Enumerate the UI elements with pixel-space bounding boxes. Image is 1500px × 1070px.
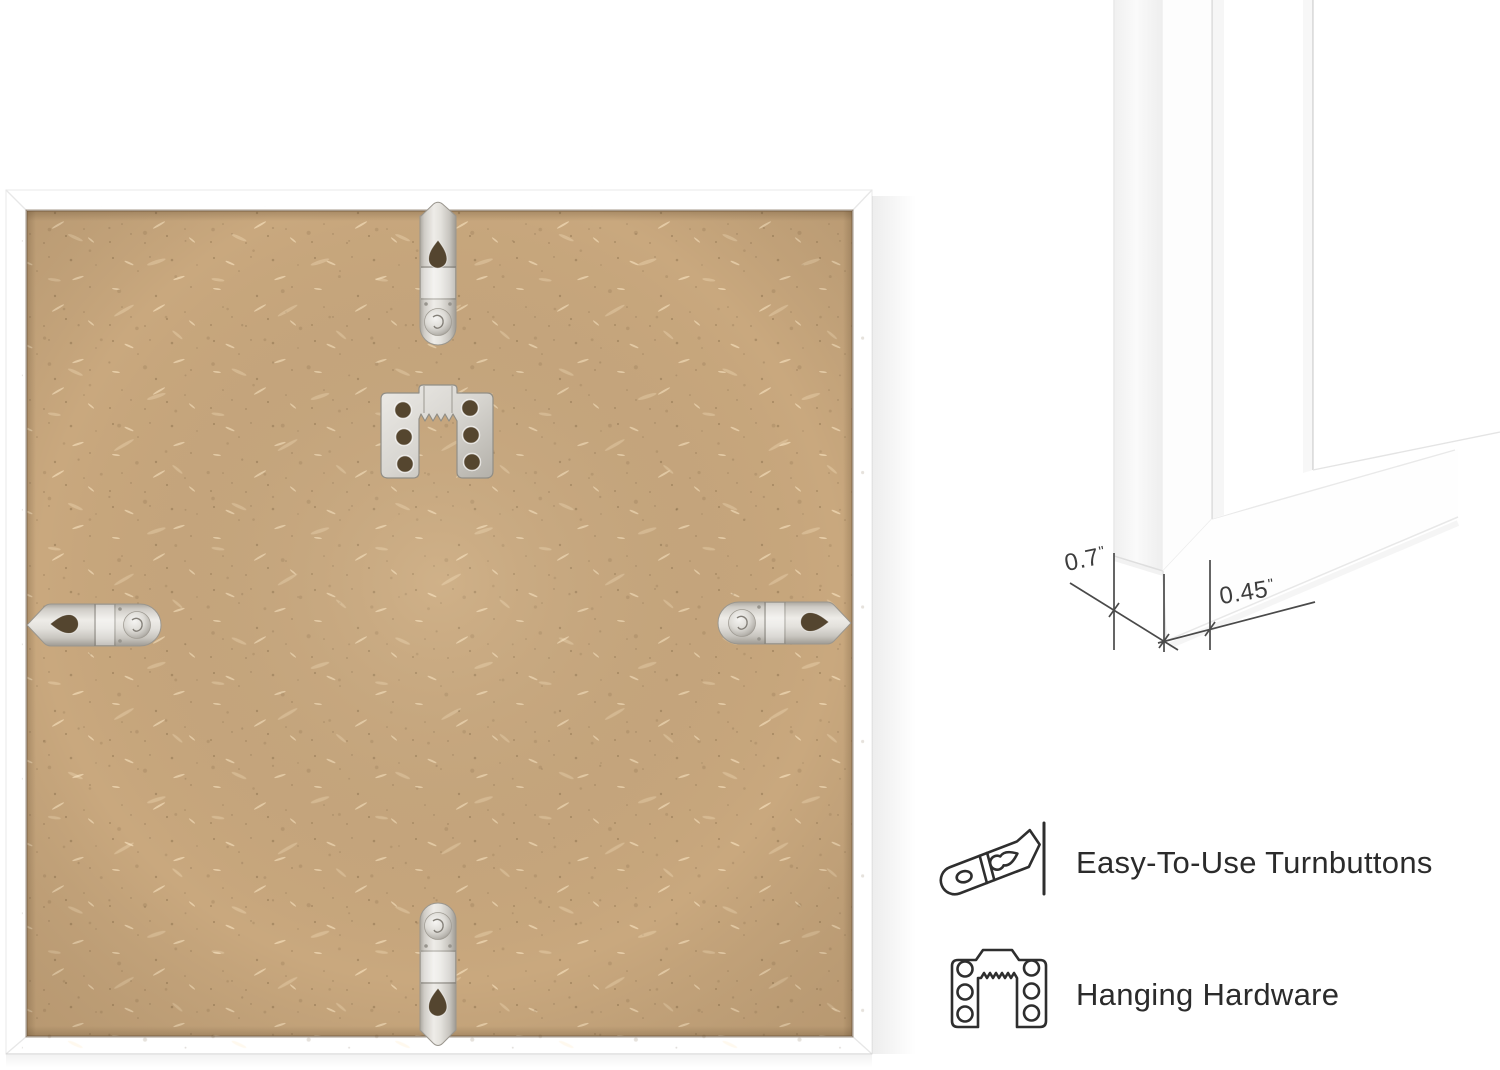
screw: [729, 610, 756, 637]
turnbutton-right: [718, 602, 851, 644]
feature-label-hanging-hardware: Hanging Hardware: [1076, 976, 1339, 1013]
dim-line-depth: [1070, 583, 1178, 650]
corner-detail: [1070, 0, 1500, 652]
hanging-hardware-icon: [952, 950, 1046, 1027]
frame-front-face: [1163, 0, 1212, 571]
feature-label-turnbuttons: Easy-To-Use Turnbuttons: [1076, 844, 1433, 881]
turnbutton-top: [420, 202, 456, 345]
screw: [425, 309, 452, 336]
dimension-value: 0.7: [1062, 543, 1102, 577]
product-scene: [0, 0, 1500, 1070]
screw: [124, 612, 151, 639]
turnbutton-bottom: [420, 903, 456, 1046]
frame-back-photo: [6, 190, 916, 1068]
turnbutton-icon: [935, 823, 1046, 898]
mat-and-art: [1212, 0, 1500, 519]
product-image: 0.7" 0.45" Easy-To-Use Turnbuttons Hangi…: [0, 0, 1500, 1070]
frame-bottom-shadow: [6, 1053, 872, 1068]
screw: [425, 913, 452, 940]
feature-icons: [935, 823, 1046, 1027]
frame-right-shadow: [872, 196, 916, 1054]
frame-side-face: [1114, 0, 1163, 571]
turnbutton-left: [27, 604, 161, 646]
